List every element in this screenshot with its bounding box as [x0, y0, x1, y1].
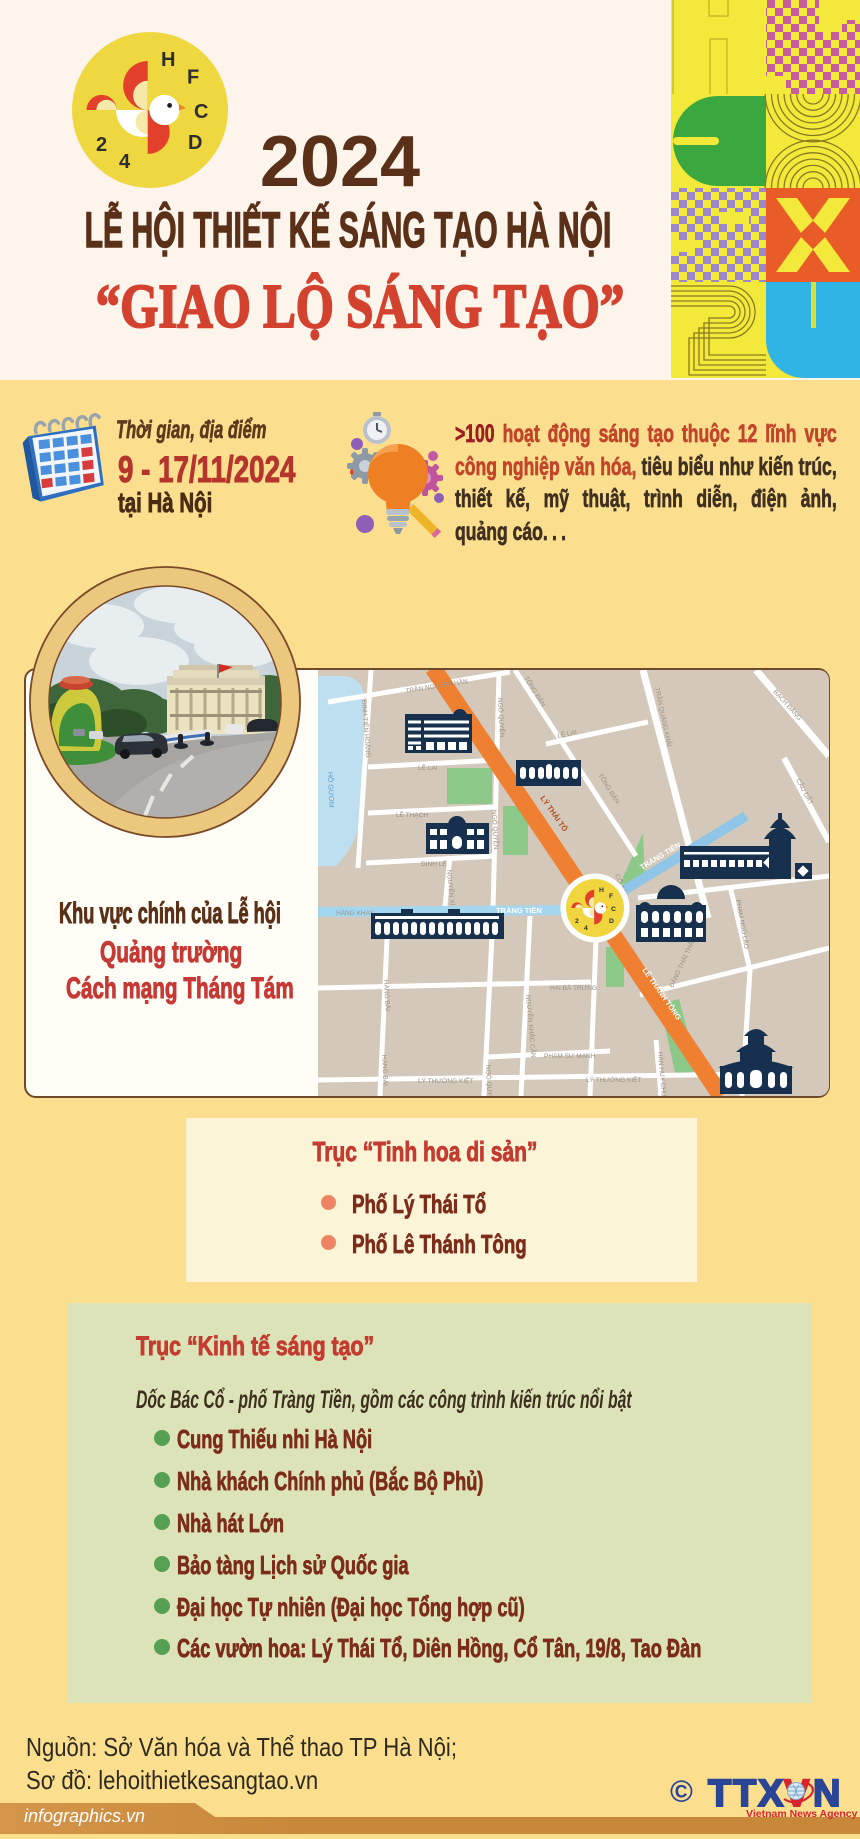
svg-text:LÝ THƯỜNG KIỆT: LÝ THƯỜNG KIỆT: [586, 1075, 641, 1084]
svg-text:H: H: [599, 887, 604, 894]
svg-text:HAI BÀ TRƯNG: HAI BÀ TRƯNG: [550, 983, 597, 992]
svg-text:©: ©: [670, 1774, 693, 1809]
svg-text:F: F: [187, 67, 199, 89]
svg-text:C: C: [194, 101, 208, 123]
svg-text:4: 4: [584, 925, 588, 932]
svg-text:LÝ THƯỜNG KIỆT: LÝ THƯỜNG KIỆT: [418, 1076, 473, 1085]
svg-text:T: T: [708, 1773, 731, 1815]
svg-text:2: 2: [96, 134, 107, 156]
svg-text:2: 2: [575, 918, 579, 925]
svg-text:4: 4: [119, 151, 131, 173]
svg-text:LÊ LAI: LÊ LAI: [418, 763, 438, 772]
svg-text:H: H: [161, 49, 175, 71]
svg-text:PHẠM SƯ MẠNH: PHẠM SƯ MẠNH: [544, 1053, 596, 1060]
svg-text:HÀNG KHAY: HÀNG KHAY: [336, 908, 374, 917]
svg-text:Vietnam News Agency: Vietnam News Agency: [746, 1808, 858, 1820]
svg-text:F: F: [609, 893, 613, 900]
svg-text:LÊ THẠCH: LÊ THẠCH: [396, 810, 428, 819]
svg-text:C: C: [611, 906, 616, 913]
svg-text:ĐINH LỄ: ĐINH LỄ: [421, 859, 447, 868]
svg-text:D: D: [609, 918, 614, 925]
